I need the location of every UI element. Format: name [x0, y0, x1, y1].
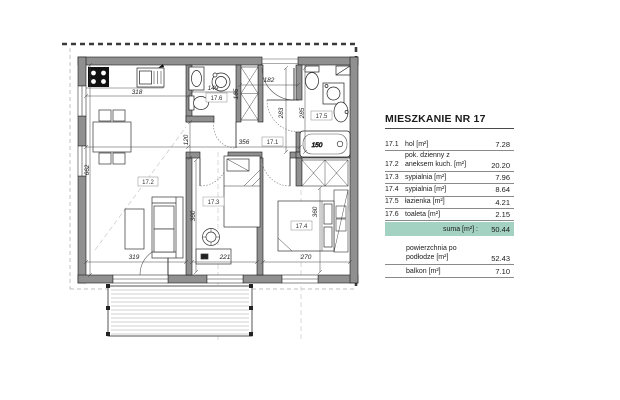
row-name: balkon [m²]: [385, 268, 478, 277]
row-name: sypialnia [m²]: [405, 174, 478, 183]
svg-text:17.6: 17.6: [211, 96, 223, 102]
room-label-17-5: 17.5: [311, 111, 332, 120]
toilet-door: [214, 122, 236, 148]
dining-table: [93, 110, 131, 164]
row-value: 7.96: [478, 173, 514, 182]
svg-text:17.5: 17.5: [316, 114, 328, 120]
svg-text:17.1: 17.1: [267, 140, 279, 146]
stove-icon: [88, 67, 109, 87]
table-row: powierzchnia po podłodze [m²] 52.43: [385, 245, 514, 265]
row-code: 17.4: [385, 186, 405, 195]
bedroom1: [196, 156, 260, 264]
living-room: [125, 197, 183, 258]
toilet-icon: [305, 66, 319, 90]
table-row: 17.2 pok. dzienny z aneksem kuch. [m²] 2…: [385, 152, 514, 172]
sum-value: 50.44: [478, 225, 514, 234]
dim-149: 149: [208, 85, 219, 92]
sum-row: suma [m²] : 50.44: [385, 222, 514, 236]
kitchen: [86, 64, 164, 164]
row-code: 17.3: [385, 174, 405, 183]
row-value: 7.28: [478, 140, 514, 149]
washing-machine-icon: [323, 83, 344, 104]
table-row: 17.1 hol [m²] 7.28: [385, 140, 514, 151]
entrance-door: [262, 68, 294, 100]
bedroom2-door: [262, 158, 290, 186]
row-name: pok. dzienny z aneksem kuch. [m²]: [405, 152, 478, 170]
bathtub-dim-label: 150: [312, 142, 323, 149]
extra-rows: powierzchnia po podłodze [m²] 52.43 balk…: [385, 245, 514, 278]
table-row: 17.6 toaleta [m²] 2.15: [385, 210, 514, 221]
dim-285: 285: [299, 107, 306, 119]
sum-label: suma [m²] :: [443, 226, 478, 233]
row-code: 17.5: [385, 198, 405, 207]
dim-319: 319: [129, 254, 140, 261]
bedroom2-closet: [302, 160, 348, 186]
row-value: 2.15: [478, 210, 514, 219]
row-code: 17.2: [385, 161, 405, 170]
table-row: balkon [m²] 7.10: [385, 267, 514, 278]
svg-text:17.2: 17.2: [142, 180, 154, 186]
bathroom-sink-icon: [334, 102, 348, 122]
bathtub-icon: [300, 131, 350, 157]
hall-wardrobe: [241, 67, 258, 120]
row-code: 17.6: [385, 211, 405, 220]
dim-360-a: 360: [190, 210, 197, 221]
svg-text:17.3: 17.3: [208, 200, 220, 206]
dim-318: 318: [132, 89, 143, 96]
svg-text:17.4: 17.4: [296, 224, 308, 230]
balcony: [106, 284, 253, 336]
bedroom2-wardrobe: [334, 190, 348, 252]
room-label-17-4: 17.4: [291, 221, 312, 230]
dim-662: 662: [84, 164, 91, 175]
bed-single: [224, 156, 260, 227]
row-name: powierzchnia po podłodze [m²]: [385, 245, 478, 263]
area-table: 17.1 hol [m²] 7.28 17.2 pok. dzienny z a…: [385, 140, 514, 221]
room-label-17-1: 17.1: [262, 137, 283, 146]
dim-270: 270: [300, 254, 312, 261]
dim-221: 221: [219, 254, 231, 261]
row-value: 52.43: [478, 254, 514, 263]
sofa: [152, 197, 183, 258]
row-name: łazienka [m²]: [405, 198, 478, 207]
floor-plan: c u: [0, 0, 620, 400]
table-row: 17.3 sypialnia [m²] 7.96: [385, 173, 514, 184]
row-value: 8.64: [478, 185, 514, 194]
room-label-17-2: 17.2: [138, 177, 158, 186]
row-code: 17.1: [385, 141, 405, 150]
small-sink-icon: [189, 67, 204, 90]
dim-182: 182: [264, 77, 275, 84]
table-row: 17.5 łazienka [m²] 4.21: [385, 198, 514, 209]
room-label-17-3: 17.3: [203, 197, 224, 206]
table-row: 17.4 sypialnia [m²] 8.64: [385, 185, 514, 196]
toilet-icon: [189, 96, 209, 110]
area-table-panel: MIESZKANIE NR 17 17.1 hol [m²] 7.28 17.2…: [385, 113, 514, 280]
dim-120: 120: [183, 134, 190, 145]
apartment-title: MIESZKANIE NR 17: [385, 113, 514, 129]
kitchen-sink-icon: [137, 64, 164, 87]
room-label-17-6: 17.6: [206, 93, 227, 102]
row-value: 7.10: [478, 267, 514, 276]
row-name: hol [m²]: [405, 141, 478, 150]
coffee-table: [125, 209, 144, 249]
dim-356: 356: [239, 139, 250, 146]
row-name: toaleta [m²]: [405, 211, 478, 220]
mirror-icon: [336, 66, 350, 75]
row-value: 4.21: [478, 198, 514, 207]
dim-165: 165: [233, 88, 240, 99]
plant-icon: [203, 229, 220, 246]
dim-283: 283: [278, 107, 285, 119]
row-name: sypialnia [m²]: [405, 186, 478, 195]
row-value: 20.20: [478, 161, 514, 170]
dim-360-b: 360: [312, 206, 319, 217]
